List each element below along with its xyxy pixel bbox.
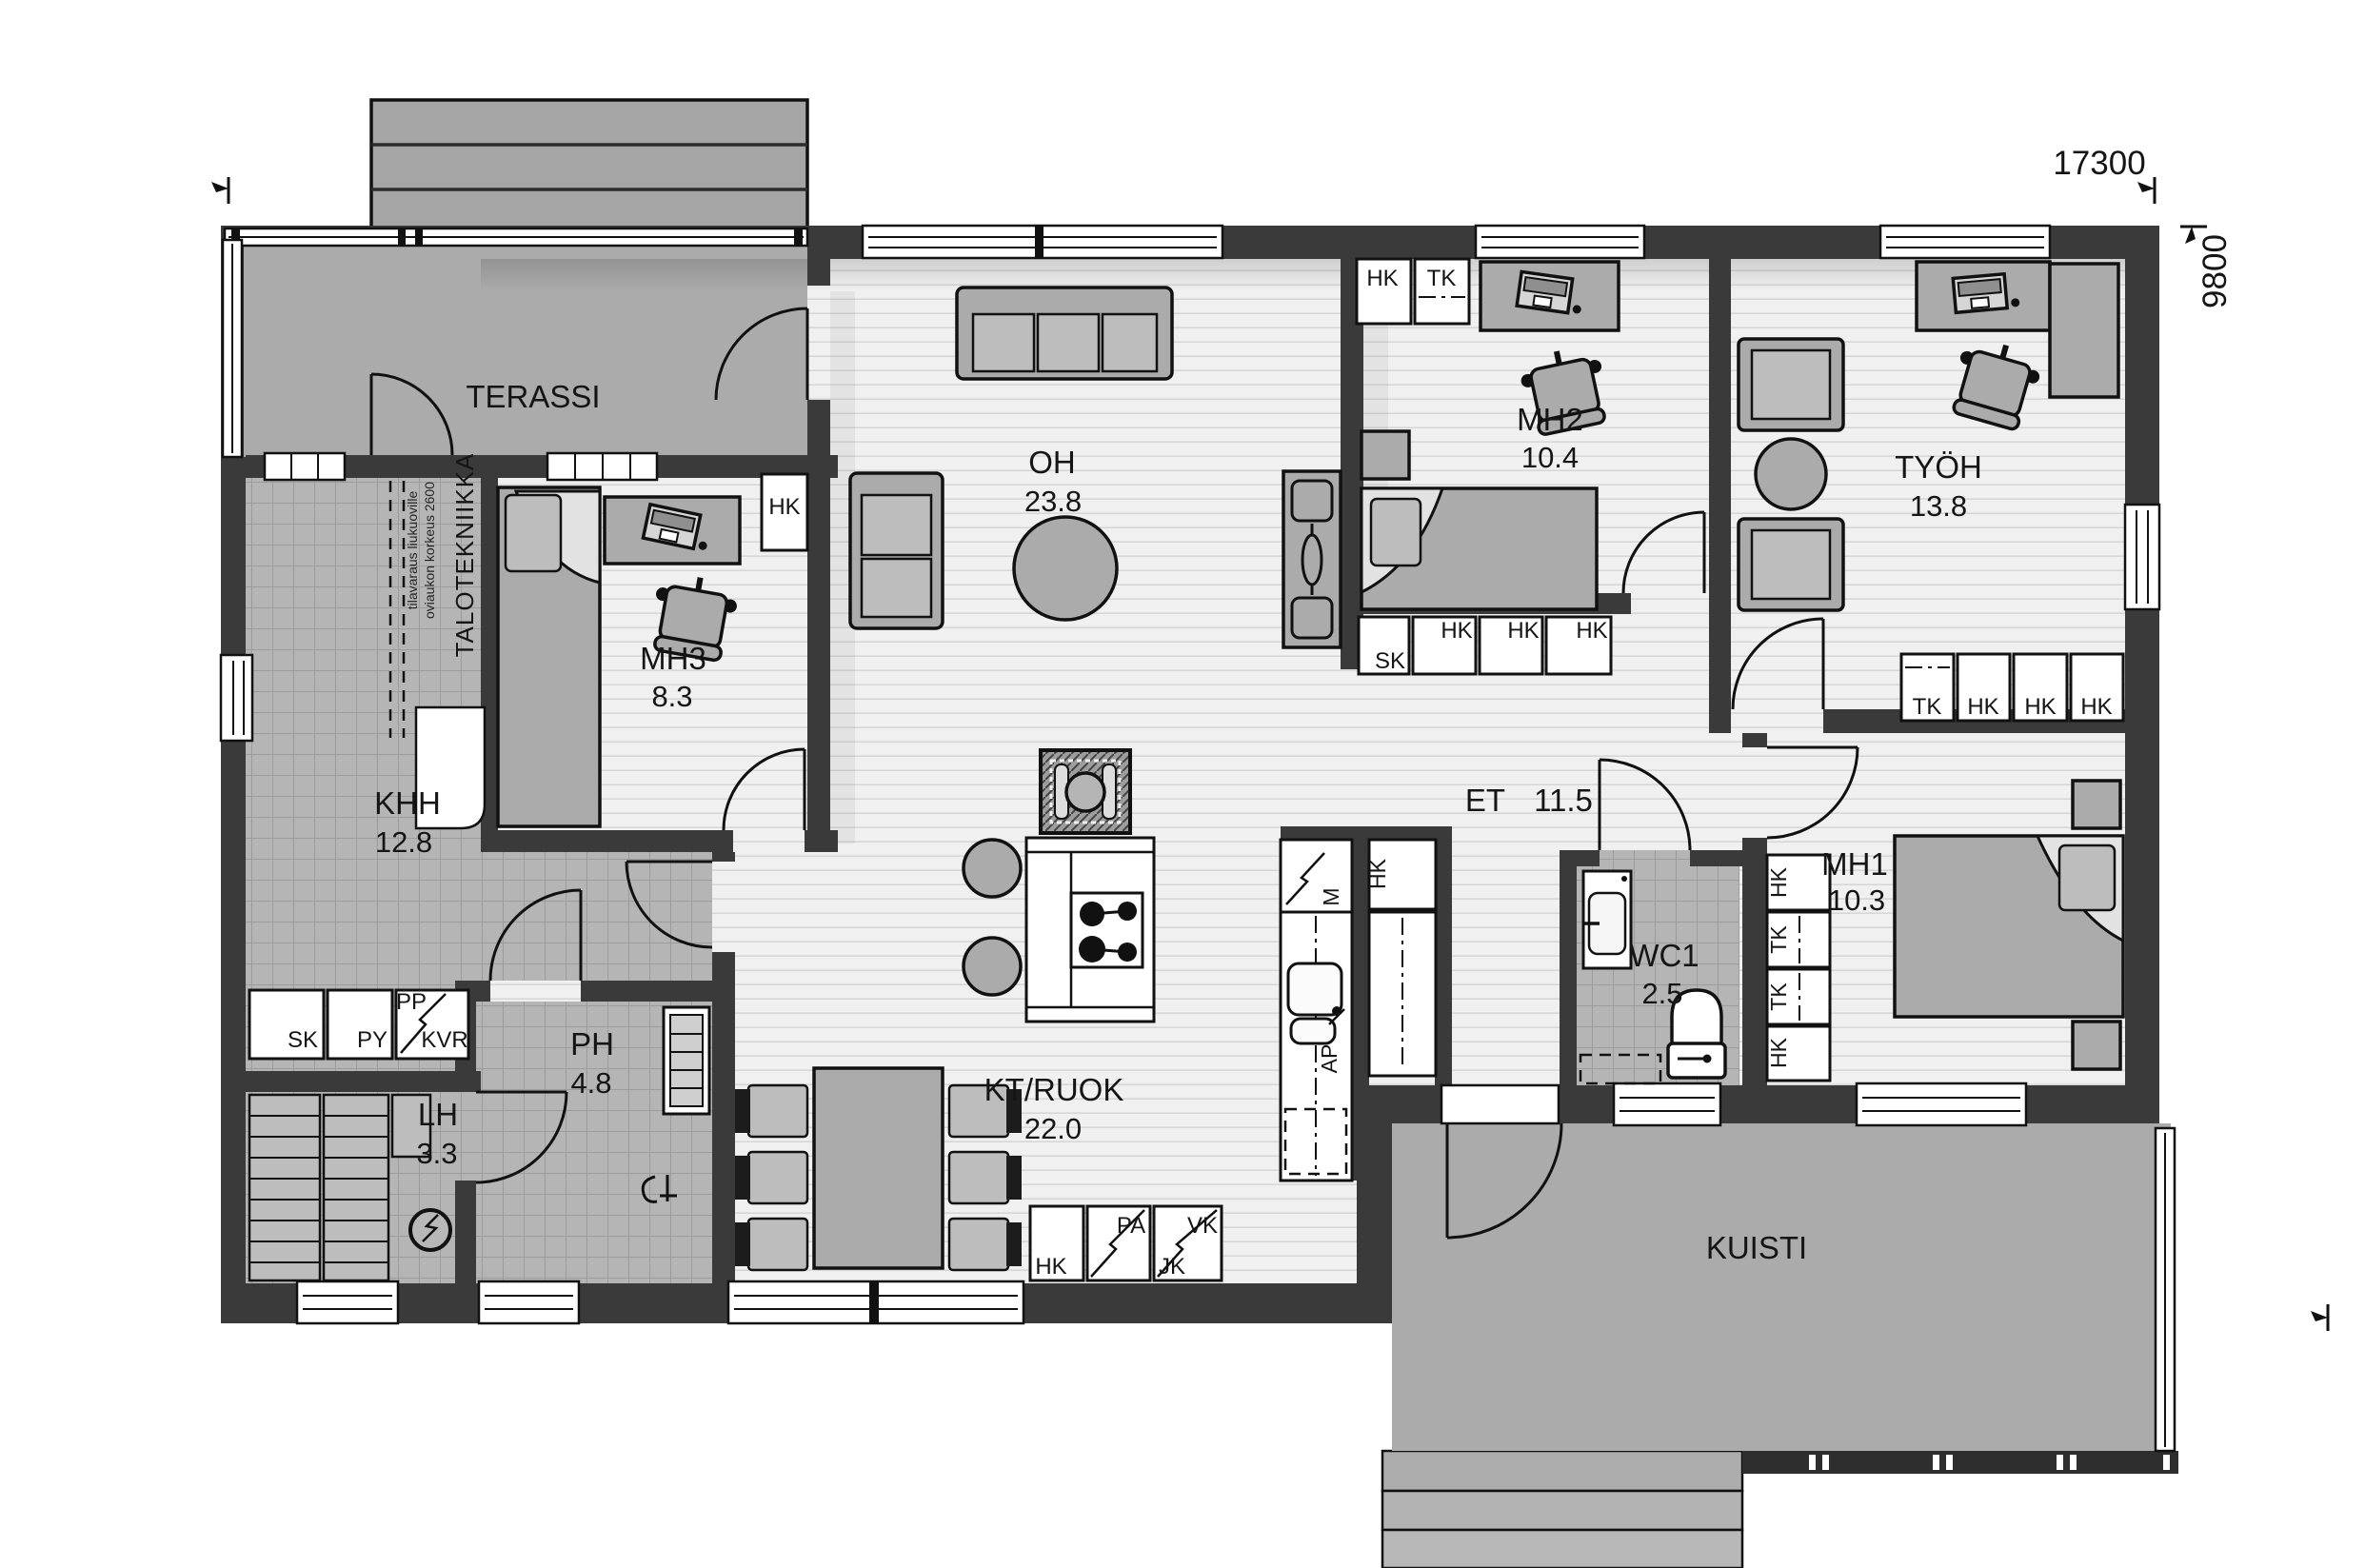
- cab-label-vk: VK: [1187, 1213, 1218, 1239]
- coffee-table: [1014, 517, 1117, 620]
- cab-label-hk: HK: [2024, 694, 2056, 720]
- room-label-oh: OH: [1028, 445, 1076, 480]
- desk-return-tyoh: [2050, 264, 2118, 397]
- porch-east-railing: [2156, 1128, 2175, 1451]
- zone-label-talotekniikka: TALOTEKNIIKKA: [450, 453, 479, 658]
- wall-wc1-north-b: [1690, 850, 1742, 866]
- room-label-terassi: TERASSI: [466, 379, 600, 414]
- sofa-cushion: [862, 559, 931, 617]
- dining-chair: [949, 1152, 1022, 1203]
- window-tyoh-east: [2125, 505, 2159, 609]
- stool: [964, 938, 1021, 995]
- note-sliding-doors-2: oviaukon korkeus 2600: [422, 482, 437, 619]
- pillow-mh3: [506, 495, 561, 571]
- wall-lh-ph-b: [455, 1181, 476, 1283]
- window-lh-south: [297, 1281, 398, 1323]
- room-label-kuisti: KUISTI: [1706, 1230, 1807, 1265]
- cab-label-hk: HK: [1366, 266, 1398, 291]
- sauna-bench: [324, 1095, 388, 1280]
- cab-label-ap: AP: [1317, 1044, 1341, 1074]
- cab-label-tk: TK: [1766, 925, 1791, 954]
- dining-chair: [735, 1219, 807, 1270]
- door-opening-khh-kt: [712, 862, 735, 952]
- porch-deck: [1392, 1123, 2171, 1451]
- room-area-mh1: 10.3: [1828, 883, 1885, 917]
- dimension-width: 17300: [2053, 145, 2145, 182]
- canopy-roof: [371, 100, 807, 233]
- window-tyoh-north: [1880, 226, 2050, 258]
- room-label-ph: PH: [570, 1026, 614, 1062]
- nightstand-mh2: [1361, 431, 1409, 479]
- cab-label-m: M: [1319, 887, 1343, 905]
- wall-ph-north-b: [581, 981, 712, 1002]
- kitchen-island: [1026, 838, 1154, 1022]
- sofa-cushion: [973, 314, 1034, 371]
- dimension-tick: [2311, 1304, 2328, 1331]
- wall-khh-kt-b: [712, 952, 735, 1283]
- room-area-lh: 3.3: [416, 1137, 457, 1170]
- cab-label-hk: HK: [1507, 618, 1539, 644]
- room-label-mh3: MH3: [640, 641, 706, 676]
- cab-label-jk: JK: [1159, 1254, 1185, 1280]
- wall-mh2-tyoh: [1709, 259, 1731, 733]
- cab-label-py: PY: [357, 1027, 388, 1053]
- window-mh2-north: [1476, 226, 1644, 258]
- dimension-tick: [211, 177, 229, 204]
- window-khh-north: [265, 453, 345, 480]
- room-label-wc1: WC1: [1629, 938, 1699, 973]
- sofa-cushion: [1103, 314, 1157, 371]
- wall-oh-west-a: [807, 240, 830, 286]
- kitchen-sink-main: [1288, 963, 1341, 1015]
- side-table: [1756, 439, 1826, 509]
- cab-label-sk: SK: [288, 1027, 318, 1053]
- window-kt-south: [728, 1281, 1024, 1323]
- window-et-south: [1614, 1083, 1720, 1125]
- room-label-et: ET: [1465, 783, 1505, 818]
- sauna-heater: [410, 1210, 450, 1250]
- wall-wc1-north-a: [1577, 850, 1600, 866]
- room-area-mh3: 8.3: [651, 680, 692, 713]
- room-label-tyoh: TYÖH: [1895, 449, 1982, 485]
- room-label-mh2: MH2: [1517, 402, 1583, 437]
- pillow-mh1: [2059, 845, 2115, 910]
- dining-set: [735, 1068, 1022, 1270]
- room-area-ph: 4.8: [570, 1066, 611, 1100]
- porch-steps: [1382, 1451, 1742, 1568]
- room-area-tyoh: 13.8: [1910, 489, 1967, 523]
- note-sliding-doors-1: tilavaraus liukuoville: [405, 491, 420, 610]
- cab-label-hk: HK: [1576, 618, 1607, 644]
- dining-table: [814, 1068, 943, 1268]
- window-mh3-north: [547, 453, 657, 480]
- shade-top: [481, 259, 2125, 291]
- dining-chair: [735, 1085, 807, 1137]
- cab-label-hk: HK: [1365, 858, 1390, 889]
- window-oh-north: [863, 226, 1222, 258]
- terrace-north-railing: [225, 228, 807, 246]
- room-label-khh: KHH: [374, 785, 441, 821]
- terrace-canopy: [371, 100, 807, 233]
- cab-label-hk: HK: [1441, 618, 1472, 644]
- window-ph-south: [479, 1281, 579, 1323]
- cab-label-hk: HK: [2080, 694, 2112, 720]
- nightstand-mh1: [2073, 781, 2120, 828]
- room-label-mh1: MH1: [1821, 846, 1888, 882]
- step: [1382, 1491, 1742, 1530]
- cab-label-kvr: KVR: [421, 1027, 467, 1053]
- cab-label-hk: HK: [1967, 694, 1998, 720]
- sauna-bench: [249, 1095, 320, 1280]
- room-area-ktruok: 22.0: [1024, 1112, 1082, 1145]
- wall-kitchen-divider: [1352, 840, 1369, 1181]
- cab-label-tk: TK: [1913, 694, 1942, 720]
- wall-lh-north: [246, 1071, 481, 1092]
- armchair-cushion: [1752, 350, 1830, 419]
- cab-label-pp: PP: [396, 989, 427, 1015]
- room-label-lh: LH: [418, 1097, 458, 1132]
- sofa-cushion: [1038, 314, 1099, 371]
- wall-mh3-south-a: [481, 830, 733, 852]
- step: [1382, 1451, 1742, 1491]
- step: [1382, 1530, 1742, 1568]
- room-area-et: 11.5: [1534, 783, 1593, 818]
- floor-plan-drawing: TERASSI OH 23.8 MH3 8.3 KHH 12.8 LH 3.3 …: [0, 0, 2365, 1568]
- cab-label-hk: HK: [768, 494, 800, 520]
- fireplace: [1041, 750, 1130, 833]
- wall-kitchen-cap: [1281, 826, 1440, 840]
- dining-chair: [735, 1152, 807, 1203]
- cab-label-hk: HK: [1035, 1254, 1066, 1280]
- window-mh1-south: [1857, 1083, 2026, 1125]
- cab-label-pa: PA: [1117, 1213, 1145, 1239]
- wall-mh1-west-b: [1742, 838, 1767, 1085]
- stool: [964, 840, 1021, 897]
- room-area-khh: 12.8: [375, 825, 432, 859]
- cab-label-tk: TK: [1766, 982, 1791, 1011]
- cab-label-sk: SK: [1375, 648, 1405, 674]
- pillow-mh2: [1371, 499, 1421, 566]
- cab-label-tk: TK: [1427, 266, 1457, 291]
- entry-door-opening: [1441, 1085, 1559, 1123]
- dimension-height: 9800: [2196, 234, 2234, 308]
- wall-vestibule-west: [1435, 826, 1452, 1085]
- porch-south-railing: [1742, 1451, 2178, 1474]
- wall-mh1-west-a: [1742, 733, 1767, 747]
- wall-oh-west-b: [807, 400, 830, 852]
- sideboard: [1283, 471, 1341, 647]
- room-label-ktruok: KT/RUOK: [984, 1072, 1124, 1107]
- floor-plan-page: TERASSI OH 23.8 MH3 8.3 KHH 12.8 LH 3.3 …: [0, 0, 2365, 1568]
- room-area-wc1: 2.5: [1641, 977, 1682, 1010]
- cab-label-hk: HK: [1766, 1037, 1791, 1068]
- room-area-oh: 23.8: [1024, 485, 1082, 518]
- armchair-cushion: [1752, 530, 1830, 599]
- cab-label-hk: HK: [1766, 866, 1791, 898]
- wall-wc1-west: [1560, 850, 1577, 1085]
- wall-khh-kt-a: [712, 852, 735, 862]
- terrace-west-railing: [223, 240, 242, 457]
- dining-chair: [949, 1219, 1022, 1270]
- kitchen-sink-small: [1291, 1019, 1335, 1043]
- nightstand-mh1: [2073, 1022, 2120, 1069]
- sofa-cushion: [862, 495, 931, 555]
- room-area-mh2: 10.4: [1521, 441, 1579, 474]
- window-khh-west: [221, 655, 252, 741]
